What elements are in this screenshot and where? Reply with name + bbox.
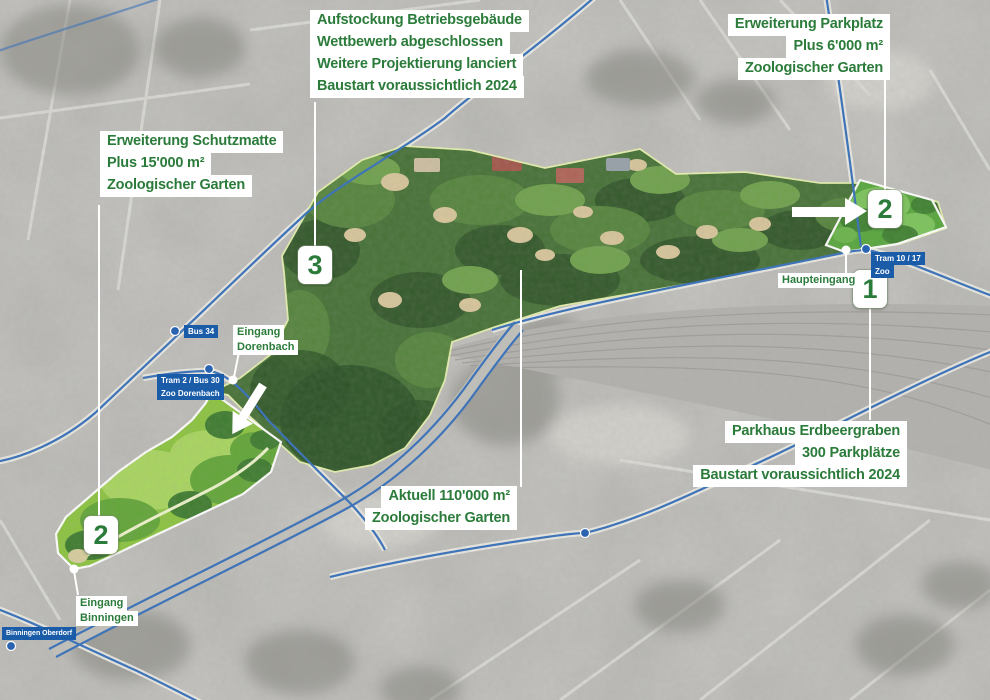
callout-line: Wettbewerb abgeschlossen [310,32,510,54]
badge-binningen-oberdorf: Binningen Oberdorf [2,627,76,640]
callout-line: Baustart voraussichtlich 2024 [310,76,524,98]
callout-line: Zoologischer Garten [738,58,890,80]
label-line: Eingang [233,325,284,340]
label-line: Dorenbach [233,340,298,355]
badge-line: Binningen Oberdorf [2,627,76,640]
callout-parkhaus: Parkhaus Erdbeergraben 300 Parkplätze Ba… [693,421,907,487]
callout-line: Weitere Projektierung lanciert [310,54,523,76]
callout-line: Parkhaus Erdbeergraben [725,421,907,443]
callout-line: Plus 15'000 m² [100,153,211,175]
badge-line: Bus 34 [184,325,218,338]
callout-schutzmatte: Erweiterung Schutzmatte Plus 15'000 m² Z… [100,131,283,197]
label-line: Haupteingang [778,273,859,288]
badge-line: Tram 2 / Bus 30 [157,374,224,387]
callout-line: Erweiterung Parkplatz [728,14,890,36]
bus34-stop-dot [171,327,180,336]
callout-line: 300 Parkplätze [795,443,907,465]
callout-line: Baustart voraussichtlich 2024 [693,465,907,487]
label-line: Binningen [76,611,138,626]
callout-line: Erweiterung Schutzmatte [100,131,283,153]
callout-line: Plus 6'000 m² [786,36,890,58]
callout-line: Zoologischer Garten [100,175,252,197]
label-line: Eingang [76,596,127,611]
label-eingang-binningen: Eingang Binningen [76,596,138,626]
label-haupteingang: Haupteingang [778,273,859,288]
badge-zoo-dorenbach: Tram 2 / Bus 30 Zoo Dorenbach [157,374,224,400]
callout-aufstockung: Aufstockung Betriebsgebäude Wettbewerb a… [310,10,529,98]
badge-bus-34: Bus 34 [184,325,218,338]
badge-line: Tram 10 / 17 [871,252,925,265]
badge-line: Zoo Dorenbach [157,387,224,400]
callout-line: Aktuell 110'000 m² [381,486,517,508]
callout-parkplatz: Erweiterung Parkplatz Plus 6'000 m² Zool… [728,14,890,80]
zoo-dorenbach-stop-dot [205,365,214,374]
label-eingang-dorenbach: Eingang Dorenbach [233,325,298,355]
callout-aktuell: Aktuell 110'000 m² Zoologischer Garten [365,486,517,530]
zoo-expansion-map: Aufstockung Betriebsgebäude Wettbewerb a… [0,0,990,700]
badge-line: Zoo [871,265,894,278]
binningen-oberdorf-stop-dot [7,642,16,651]
haupteingang-dot [842,246,851,255]
dorenbach-entrance-dot [229,376,238,385]
marker-2-parkplatz: 2 [868,190,902,228]
marker-3-aufstockung: 3 [298,246,332,284]
callout-line: Zoologischer Garten [365,508,517,530]
callout-line: Aufstockung Betriebsgebäude [310,10,529,32]
zoo-main-stop-dot [862,245,871,254]
badge-zoo-main: Tram 10 / 17 Zoo [871,252,925,278]
aerial-map [0,0,990,700]
marker-2-schutzmatte: 2 [84,516,118,554]
road-stop-dot [581,529,590,538]
binningen-entrance-dot [70,565,79,574]
